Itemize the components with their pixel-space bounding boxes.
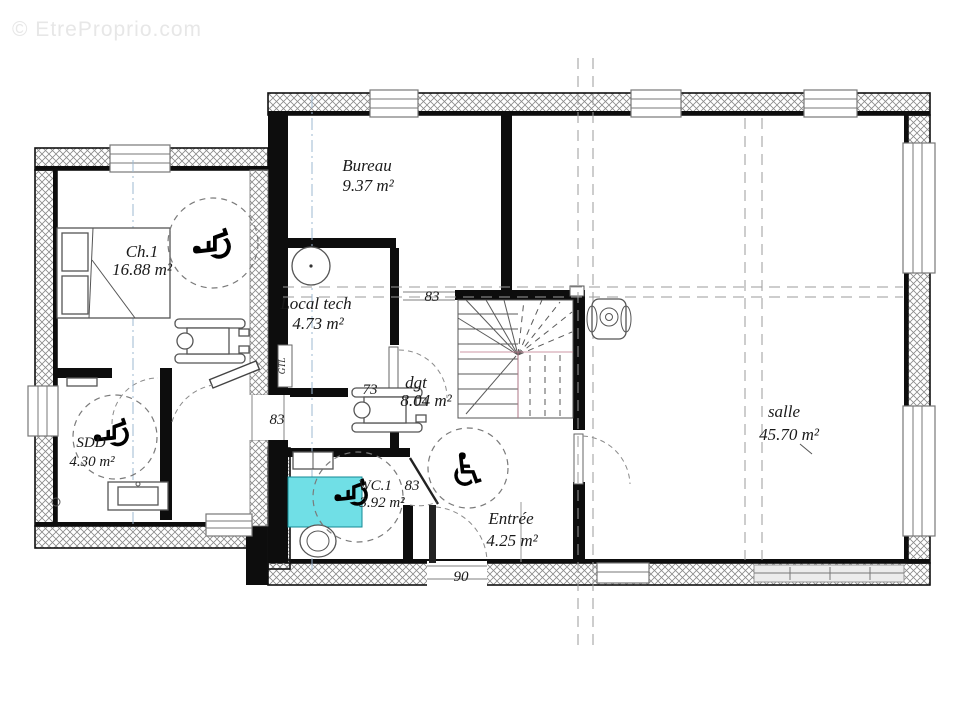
floor-plan-drawing: ♿ ♿ ♿ ♿ Bureau 9.37 m² Ch.1 16.88 m² Loc… <box>0 0 959 720</box>
label-salle-area: 45.70 m² <box>759 425 820 444</box>
label-local-tech-area: 4.73 m² <box>292 314 344 333</box>
salle-door-bottom <box>597 563 649 583</box>
label-ch1-area: 16.88 m² <box>112 260 173 279</box>
wheelchair-icon: ♿ <box>447 443 488 497</box>
window-top-1 <box>370 90 418 117</box>
window-bottom-left <box>206 514 252 536</box>
window-right-upper <box>903 143 935 273</box>
dim-dgt-opening: 73 <box>363 382 378 398</box>
salle-label-leader <box>800 444 812 454</box>
window-right-lower <box>903 406 935 536</box>
window-left <box>28 386 58 436</box>
label-bureau-area: 9.37 m² <box>342 176 394 195</box>
wheelchair-topview-bedroom <box>175 319 249 363</box>
label-sdd-name: SDD <box>76 435 105 451</box>
dim-wc-door: 83 <box>405 478 420 494</box>
label-dgt-area: 8.04 m² <box>400 391 452 410</box>
label-wc1-area: 3.92 m² <box>358 495 405 511</box>
room-labels: Bureau 9.37 m² Ch.1 16.88 m² Local tech … <box>69 156 820 550</box>
stove <box>587 299 631 339</box>
window-top-3 <box>804 90 857 117</box>
label-entree-name: Entrée <box>487 509 534 528</box>
label-bureau-name: Bureau <box>342 156 391 175</box>
label-salle-name: salle <box>768 402 801 421</box>
label-local-tech-name: Local tech <box>279 294 351 313</box>
label-gtl: GTL <box>277 358 287 375</box>
salle-door-inner <box>574 434 630 484</box>
water-heater <box>292 247 330 285</box>
floor-plan-page: © EtreProprio.com <box>0 0 959 720</box>
glazed-bay-bottom <box>754 565 904 582</box>
wheelchair-icon: ♿ <box>184 220 244 267</box>
label-wc1-name: WC.1 <box>358 478 392 494</box>
staircase <box>458 300 573 418</box>
window-bedroom-top <box>110 145 170 172</box>
dim-hall-door: 83 <box>270 412 285 428</box>
label-entree-area: 4.25 m² <box>486 531 538 550</box>
label-ch1-name: Ch.1 <box>126 242 159 261</box>
dim-entry-door: 90 <box>454 569 470 585</box>
window-top-2 <box>631 90 681 117</box>
dim-bureau-passage: 83 <box>425 289 440 305</box>
label-sdd-area: 4.30 m² <box>69 454 115 470</box>
label-dgt-name: dgt <box>405 373 428 392</box>
